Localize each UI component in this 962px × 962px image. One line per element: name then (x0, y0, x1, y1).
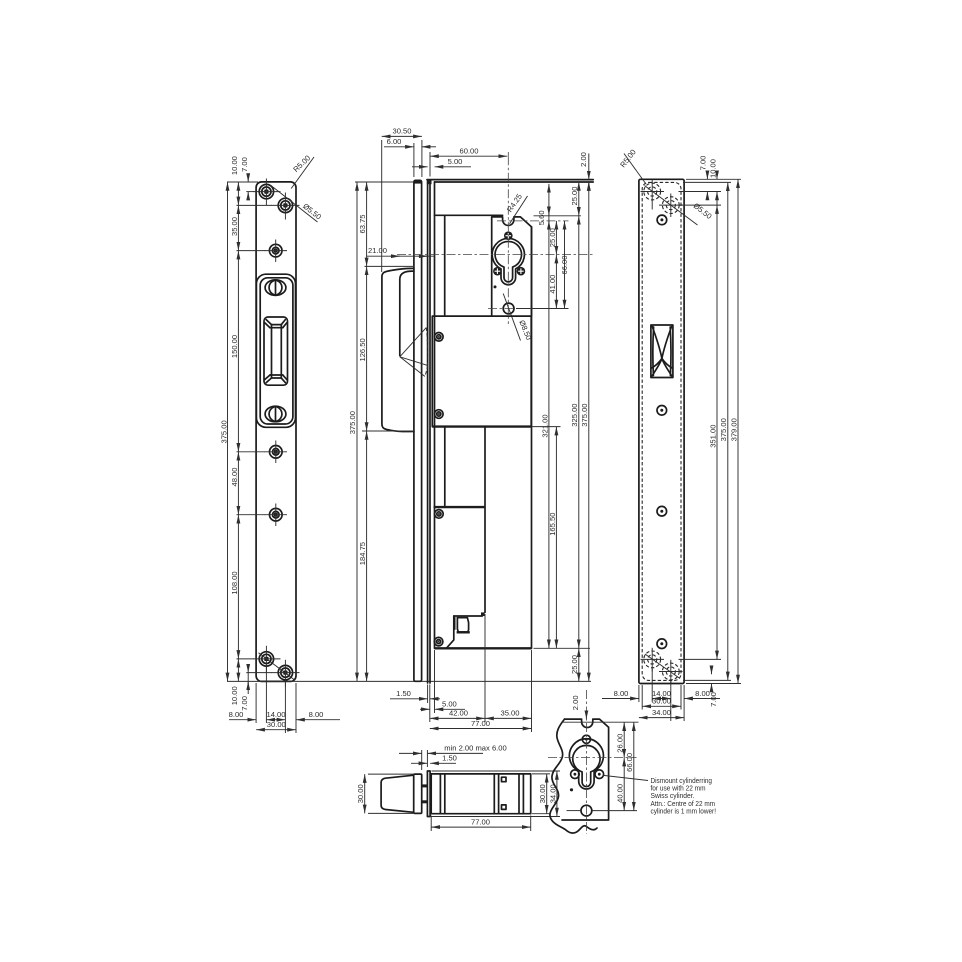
svg-text:8.00: 8.00 (614, 689, 629, 698)
svg-text:30.50: 30.50 (392, 127, 411, 136)
svg-text:5.00: 5.00 (442, 700, 457, 709)
svg-text:10.00: 10.00 (230, 686, 239, 705)
svg-text:Attn.: Centre of 22 mm: Attn.: Centre of 22 mm (651, 801, 716, 808)
svg-text:66.00: 66.00 (625, 753, 634, 772)
svg-text:Swiss cylinder.: Swiss cylinder. (651, 793, 695, 800)
svg-text:77.00: 77.00 (471, 719, 490, 728)
svg-text:25.00: 25.00 (570, 186, 579, 205)
svg-text:41.00: 41.00 (548, 275, 557, 294)
svg-text:cylinder is 1 mm lower!: cylinder is 1 mm lower! (651, 809, 717, 816)
svg-text:8.00: 8.00 (695, 689, 710, 698)
svg-text:77.00: 77.00 (471, 817, 490, 826)
svg-text:63.75: 63.75 (358, 214, 367, 233)
svg-text:325.00: 325.00 (570, 403, 579, 426)
svg-text:375.00: 375.00 (219, 420, 228, 443)
svg-text:1.50: 1.50 (396, 689, 411, 698)
svg-text:321.00: 321.00 (540, 414, 549, 437)
svg-text:7.00: 7.00 (699, 156, 708, 171)
svg-text:40.00: 40.00 (616, 784, 625, 803)
svg-text:150.00: 150.00 (230, 335, 239, 358)
svg-text:375.00: 375.00 (719, 418, 728, 441)
svg-text:5.00: 5.00 (448, 157, 463, 166)
svg-text:30.00: 30.00 (267, 720, 286, 729)
svg-text:60.00: 60.00 (459, 147, 478, 156)
svg-text:25.00: 25.00 (570, 655, 579, 674)
svg-text:30.00: 30.00 (356, 784, 365, 803)
svg-text:375.00: 375.00 (348, 411, 357, 434)
svg-text:126.50: 126.50 (358, 338, 367, 361)
svg-text:26.00: 26.00 (616, 734, 625, 753)
svg-text:165.50: 165.50 (548, 513, 557, 536)
svg-text:351.00: 351.00 (708, 425, 717, 448)
svg-text:30.00: 30.00 (652, 697, 671, 706)
svg-text:66.00: 66.00 (560, 255, 569, 274)
svg-text:14.00: 14.00 (266, 710, 285, 719)
svg-text:7.00: 7.00 (240, 696, 249, 711)
svg-text:379.00: 379.00 (729, 418, 738, 441)
svg-text:48.00: 48.00 (230, 467, 239, 486)
svg-text:for use with 22 mm: for use with 22 mm (651, 786, 706, 793)
svg-text:5.60: 5.60 (537, 210, 546, 225)
svg-text:35.00: 35.00 (500, 709, 519, 718)
svg-text:25.00: 25.00 (548, 228, 557, 247)
svg-text:30.00: 30.00 (538, 784, 547, 803)
svg-text:35.00: 35.00 (230, 217, 239, 236)
svg-text:10.00: 10.00 (230, 156, 239, 175)
svg-text:min 2.00 max 6.00: min 2.00 max 6.00 (444, 744, 506, 753)
svg-text:10.00: 10.00 (708, 159, 717, 178)
svg-text:7.00: 7.00 (709, 692, 718, 707)
svg-text:2.00: 2.00 (579, 152, 588, 167)
svg-text:2.00: 2.00 (571, 695, 580, 710)
svg-text:8.00: 8.00 (229, 710, 244, 719)
svg-text:21.00: 21.00 (368, 246, 387, 255)
svg-text:Dismount cylinderring: Dismount cylinderring (651, 778, 713, 785)
svg-text:1.50: 1.50 (442, 754, 457, 763)
svg-text:375.00: 375.00 (580, 403, 589, 426)
svg-text:42.00: 42.00 (449, 709, 468, 718)
svg-text:108.00: 108.00 (230, 571, 239, 594)
svg-text:6.00: 6.00 (387, 137, 402, 146)
svg-text:7.00: 7.00 (240, 157, 249, 172)
svg-text:34.00: 34.00 (652, 708, 671, 717)
svg-text:184.75: 184.75 (358, 542, 367, 565)
svg-text:8.00: 8.00 (309, 710, 324, 719)
